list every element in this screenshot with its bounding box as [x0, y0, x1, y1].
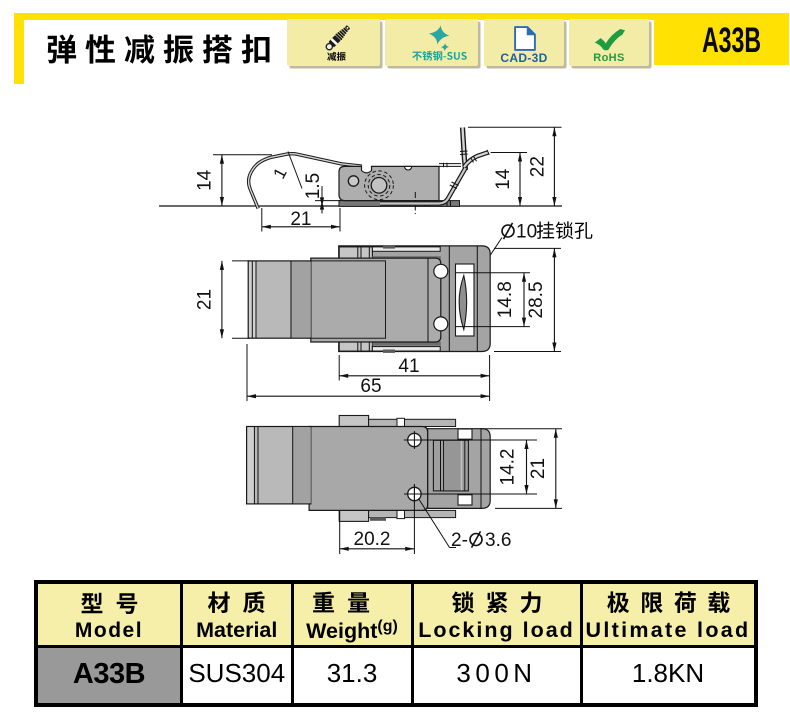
svg-text:1: 1 — [270, 165, 291, 182]
svg-text:20.2: 20.2 — [354, 529, 391, 550]
svg-text:21: 21 — [528, 458, 549, 479]
svg-text:22: 22 — [528, 156, 549, 177]
svg-text:21: 21 — [195, 289, 216, 310]
svg-text:10: 10 — [516, 222, 537, 243]
svg-text:1.5: 1.5 — [303, 173, 324, 199]
svg-text:65: 65 — [360, 376, 381, 397]
svg-text:3.6: 3.6 — [485, 530, 511, 551]
svg-text:14.8: 14.8 — [495, 281, 516, 318]
svg-text:21: 21 — [290, 209, 311, 230]
svg-text:2-: 2- — [451, 530, 468, 551]
svg-text:28.5: 28.5 — [526, 281, 547, 318]
svg-text:14: 14 — [195, 169, 216, 191]
svg-text:14.2: 14.2 — [498, 449, 519, 486]
svg-text:41: 41 — [398, 356, 419, 377]
svg-text:14: 14 — [493, 168, 514, 190]
